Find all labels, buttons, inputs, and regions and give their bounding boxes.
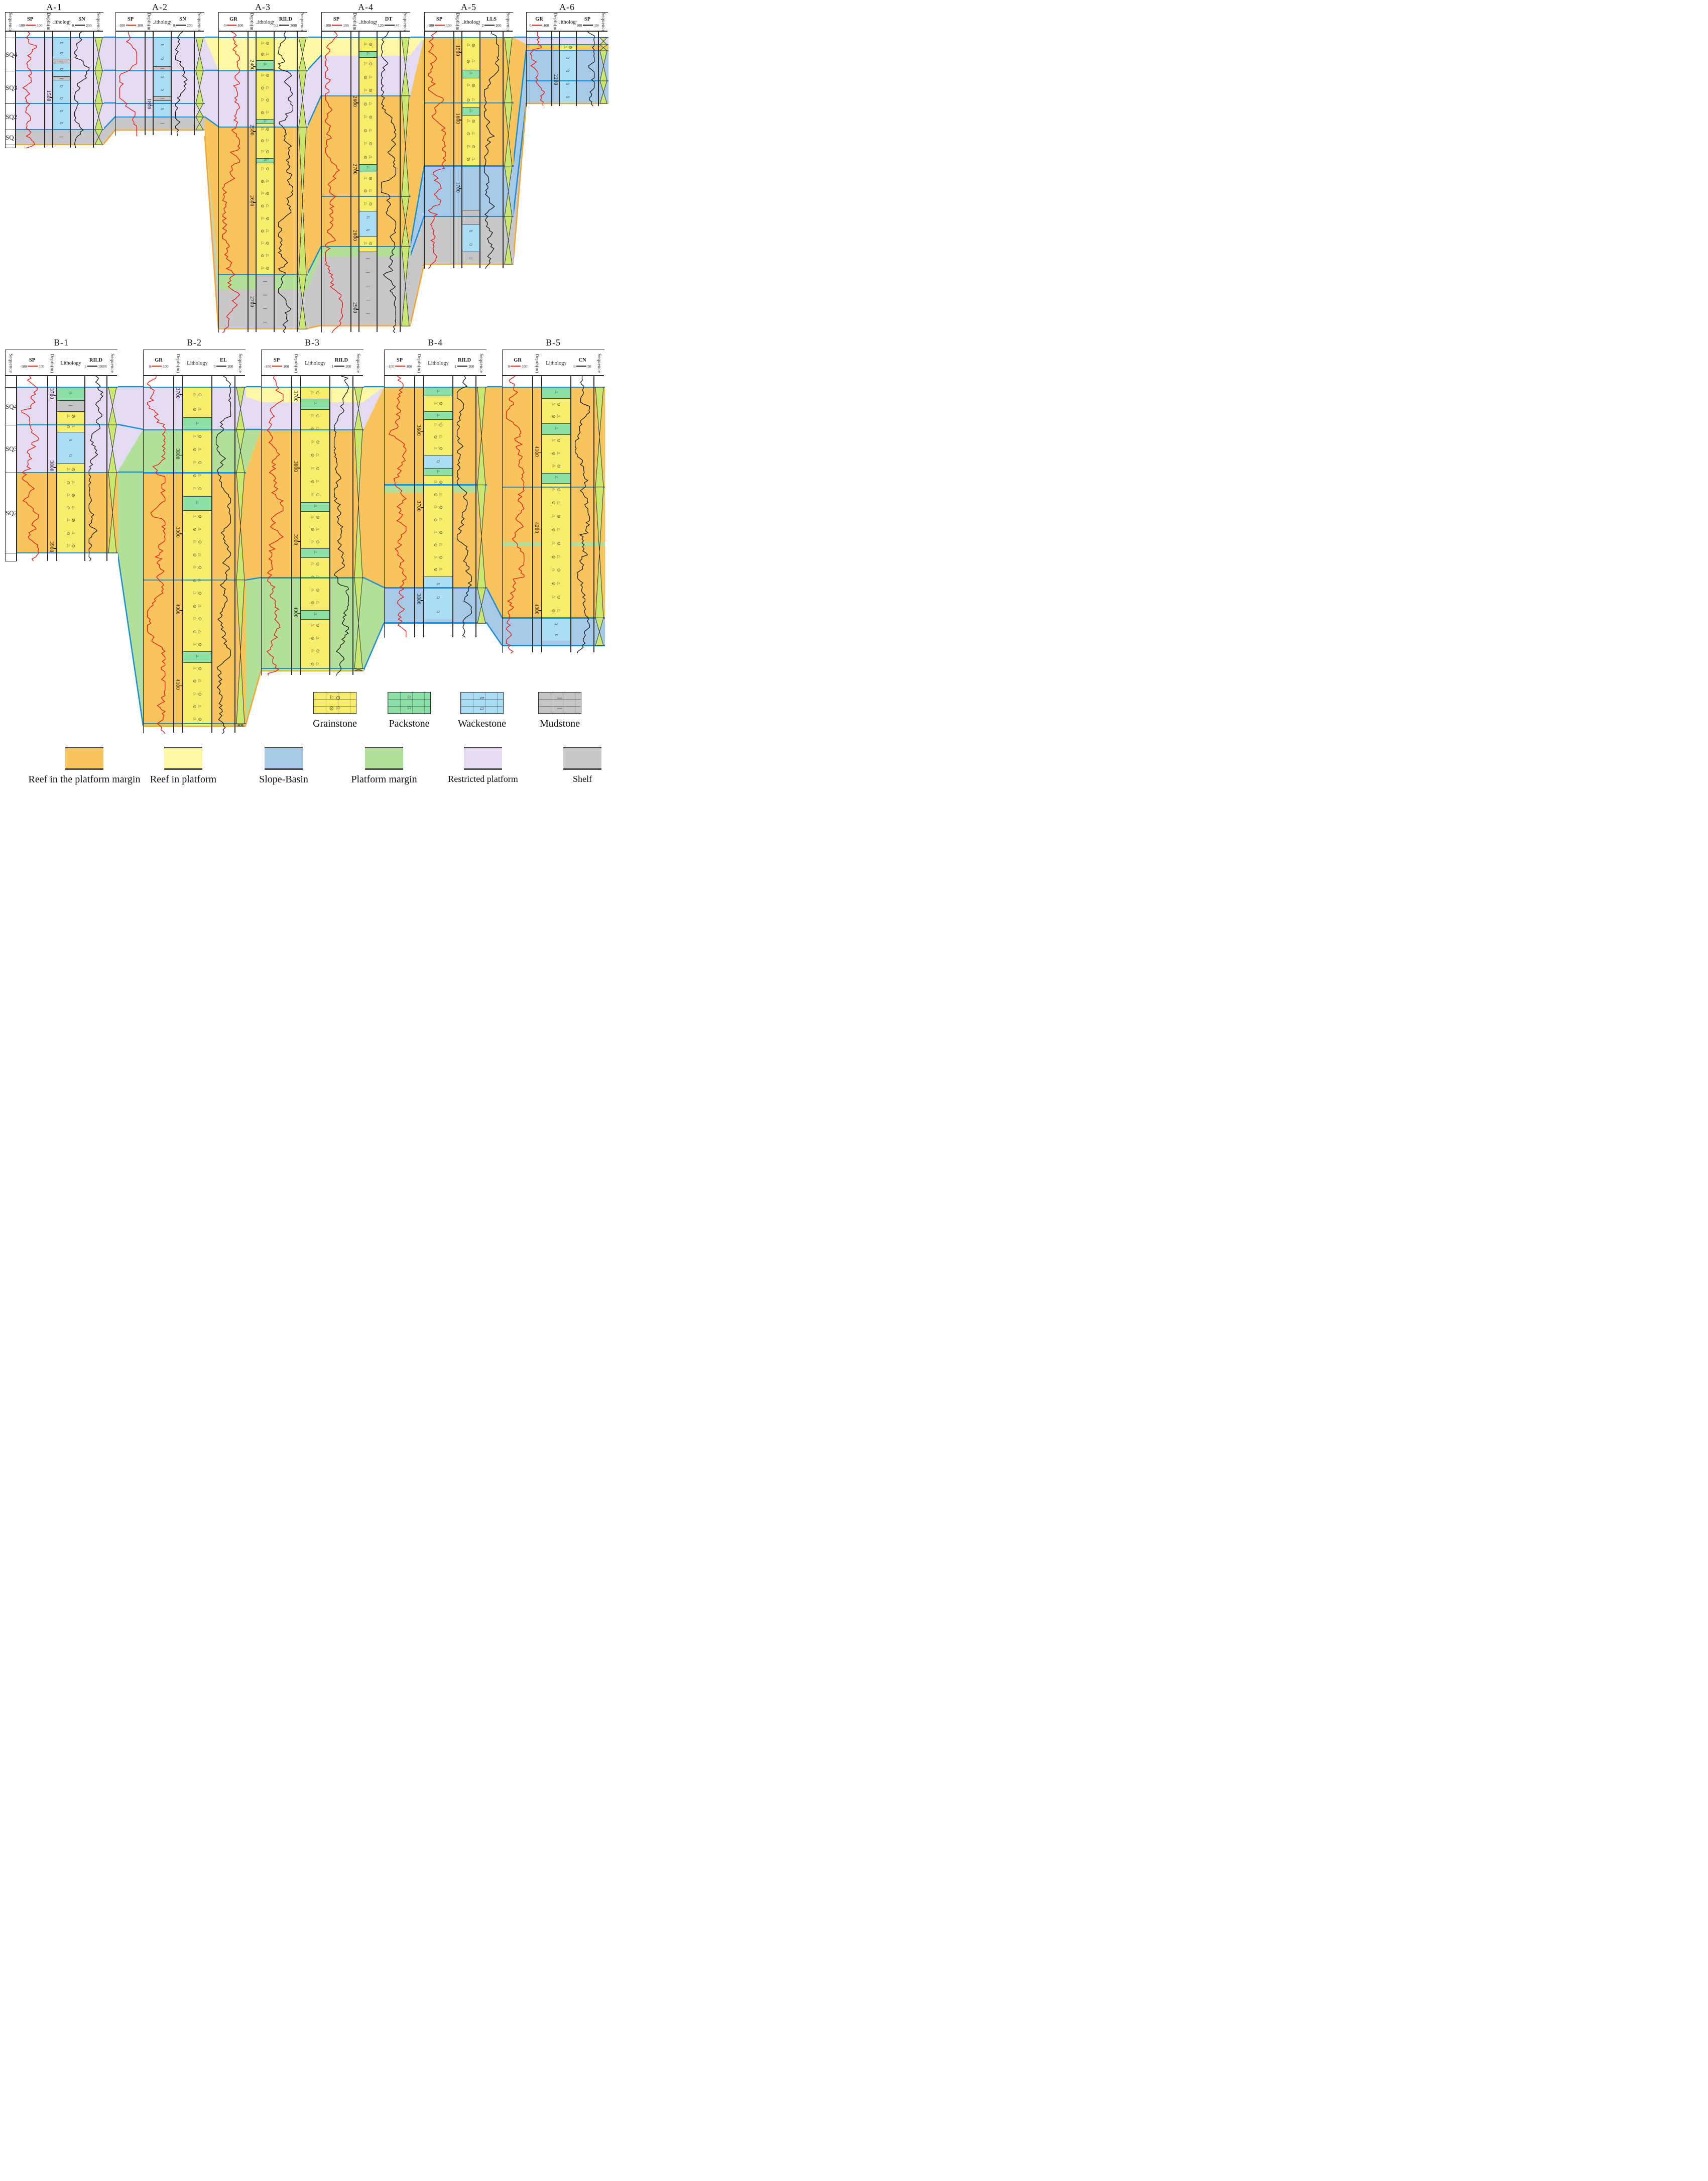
lithology-block-g: ⚐ ⊙⊙ ⚐ <box>183 387 212 417</box>
lithology-symbol: ⚐ ⊙ <box>434 402 442 406</box>
lithology-symbol: ⚐ <box>554 427 558 431</box>
depth-tick-label: 3800 <box>293 461 298 472</box>
sequence-triangle <box>477 536 485 588</box>
sequence-triangles <box>235 376 246 734</box>
lithology-symbol: ⚐ ⊙ <box>434 531 442 535</box>
column-divider <box>106 350 107 561</box>
depth-header: Depth(m) <box>174 350 183 376</box>
lithology-symbol: ⚐ ⊙ <box>66 544 75 549</box>
lithology-symbol: ⚐ ⊙ <box>311 391 319 396</box>
lithology-block-p: ⚐ <box>183 417 212 430</box>
sq-label: SQ3 <box>6 445 17 452</box>
sequence-triangle <box>595 632 603 646</box>
lithology-block-p: ⚐ <box>424 411 453 419</box>
depth-tick-label: 4200 <box>534 522 539 533</box>
lithology-block-w: ▱▱▱ <box>424 577 453 619</box>
sequence-triangle <box>595 618 603 632</box>
depth-tick-label: 3700 <box>49 388 54 399</box>
lithology-symbol: ⊙ ⚐ <box>329 706 341 711</box>
lithology-block-g: ⚐ ⊙ <box>424 396 453 411</box>
lithology-symbol: — <box>557 695 563 701</box>
sequence-triangle <box>236 430 245 451</box>
depth-tick-mark <box>298 397 300 398</box>
curve-max: 100 <box>39 365 44 369</box>
sequence-triangle <box>354 623 362 668</box>
lithology-symbol: ⚐ ⊙ <box>193 461 201 466</box>
legend-label: Platform margin <box>351 774 417 785</box>
lithology-block-g: ⚐ ⊙⊙ ⚐⚐ ⊙ <box>301 511 330 549</box>
sequence-triangle <box>477 436 485 485</box>
depth-tick-label: 4000 <box>175 604 180 615</box>
left-curve-header: GR0100 <box>144 350 174 376</box>
well-header: GR0100EL0200Depth(m)LithologySequence <box>144 350 245 376</box>
lithology-symbol: ⊙ ⚐ <box>193 474 201 479</box>
depth-header-label: Depth(m) <box>50 354 55 373</box>
sequence-triangle <box>236 725 245 726</box>
depth-tick-mark <box>421 431 423 432</box>
lithology-header-label: Lithology <box>305 361 325 366</box>
curve-min: 0 <box>214 365 216 369</box>
left-curve-trace <box>389 376 406 637</box>
curve-scale-line <box>87 366 97 367</box>
curve-min: -100 <box>20 365 27 369</box>
lithology-block-p: ⚐ <box>542 387 571 398</box>
right-curve-header: EL0200 <box>212 350 235 376</box>
column-divider <box>329 350 330 675</box>
lithology-symbol: ⊙ ⚐ <box>311 662 319 667</box>
lithology-symbol: ⊙ ⚐ <box>66 532 75 536</box>
lithology-symbol: ⊙ ⚐ <box>311 480 319 485</box>
lithology-block-g: ⚐ ⊙⊙ ⚐⚐ ⊙⊙ ⚐⚐ ⊙⊙ ⚐⚐ ⊙ <box>57 464 85 553</box>
lithology-symbol: ▱ <box>69 453 73 458</box>
right-curve <box>330 376 353 676</box>
depth-header: Depth(m) <box>292 350 301 376</box>
lithology-symbol: ⚐ ⊙ <box>434 447 442 451</box>
lithology-symbol: ⊙ ⚐ <box>552 609 560 614</box>
sequence-triangle <box>236 473 245 526</box>
sequence-triangle <box>595 437 603 487</box>
curve-name: SP <box>274 358 280 364</box>
lithology-symbol: ⊙ ⚐ <box>311 601 319 606</box>
lithology-symbol: ⊙ ⚐ <box>193 630 201 635</box>
curve-scale-line <box>216 366 226 367</box>
sequence-triangle <box>236 580 245 652</box>
column-divider <box>84 350 85 561</box>
lithology-symbol: ⚐ <box>436 390 440 394</box>
lithology-symbol: ⊙ ⚐ <box>552 555 560 560</box>
well-header: SP-100100RILD1200Depth(m)LithologySequen… <box>262 350 363 376</box>
curve-scale-line <box>457 366 467 367</box>
column-divider <box>475 350 476 637</box>
curve-scale: 1200 <box>331 365 352 369</box>
right-curve-trace <box>89 376 102 561</box>
right-curve-header: RILD110000 <box>85 350 107 376</box>
depth-tick-mark <box>298 541 300 542</box>
lithology-symbol: ⚐ ⊙ <box>552 596 560 600</box>
left-curve-header: SP-100100 <box>262 350 292 376</box>
lithology-symbol: ⚐ ⊙ <box>552 568 560 573</box>
right-curve-header: RILD1200 <box>453 350 476 376</box>
depth-tick-mark <box>539 452 541 453</box>
curve-max: 100 <box>522 365 527 369</box>
legend-swatch-packstone: ⚐⚐ <box>388 692 431 714</box>
depth-header-label: Depth(m) <box>176 354 181 373</box>
curve-name: SP <box>397 358 403 364</box>
column-divider <box>423 350 424 637</box>
sequence-triangle <box>108 387 116 406</box>
lithology-symbol: ⚐ <box>313 505 317 509</box>
sequence-triangle <box>236 451 245 473</box>
legend-swatch-mudstone: —— <box>538 692 581 714</box>
sequence-triangle <box>354 408 362 429</box>
curve-max: 200 <box>468 365 474 369</box>
lithology-block-p: ⚐ <box>183 496 212 510</box>
lithology-symbol: ⊙ ⚐ <box>434 518 442 523</box>
column-divider <box>211 350 212 733</box>
curve-max: 50 <box>587 365 591 369</box>
lithology-symbol: ⚐ ⊙ <box>552 439 560 443</box>
lithology-symbol: ⚐ ⊙ <box>193 435 201 439</box>
sequence-triangle <box>477 387 485 436</box>
header-divider <box>385 375 486 376</box>
curve-scale: -100100 <box>386 365 413 369</box>
depth-tick-mark <box>421 600 423 601</box>
sequence-triangles <box>107 376 118 562</box>
lithology-symbol: ⚐ ⊙ <box>552 542 560 546</box>
well-header: SP-100100RILD1200Depth(m)LithologySequen… <box>385 350 486 376</box>
column-divider <box>532 350 533 652</box>
lithology-block-g: ⚐ ⊙⊙ ⚐ <box>57 411 85 432</box>
sequence-triangle <box>108 448 116 473</box>
lithology-symbol: — <box>69 404 73 408</box>
lithology-symbol: ⊙ ⚐ <box>193 679 201 684</box>
lithology-symbol: ⊙ ⚐ <box>193 705 201 710</box>
sequence-header: Sequence <box>594 350 605 376</box>
sequence-row-header-label: Sequence <box>9 354 14 373</box>
sequence-header-label: Sequence <box>597 354 602 373</box>
sequence-triangle <box>595 387 603 437</box>
legend-swatch-wackestone: ▱▱ <box>460 692 504 714</box>
curve-scale: 0200 <box>213 365 234 369</box>
sequence-triangle <box>236 408 245 429</box>
sequence-header: Sequence <box>107 350 118 376</box>
lithology-symbol: ⚐ ⊙ <box>66 494 75 498</box>
curve-min: 0 <box>573 365 575 369</box>
sequence-triangles <box>353 376 364 676</box>
sequence-triangles <box>594 376 605 653</box>
curve-name: EL <box>220 358 227 364</box>
left-curve-header: GR0100 <box>503 350 533 376</box>
lithology-symbol: ▱ <box>437 460 440 464</box>
sequence-header: Sequence <box>476 350 487 376</box>
right-curve <box>212 376 235 734</box>
header-divider <box>6 375 117 376</box>
right-curve <box>85 376 107 562</box>
lithology-symbol: ⚐ ⊙ <box>193 718 201 722</box>
column-divider <box>182 350 183 733</box>
curve-scale: 0100 <box>145 365 172 369</box>
lithology-block-g: ⚐ ⊙ <box>301 387 330 399</box>
curve-name: GR <box>514 358 522 364</box>
curve-scale-line <box>152 366 162 367</box>
lithology-symbol: ⚐ ⊙ <box>311 589 319 593</box>
legend-label: Slope-Basin <box>259 774 308 785</box>
depth-tick-mark <box>54 395 56 396</box>
lithology-symbol: ▱ <box>555 622 558 626</box>
lithology-symbol: ⚐ <box>69 392 73 396</box>
lithology-symbol: ⚐ <box>407 695 412 701</box>
lithology-block-w: ▱▱ <box>57 432 85 464</box>
curve-min: 1 <box>455 365 457 369</box>
sequence-triangle <box>354 387 362 408</box>
curve-scale: 1200 <box>454 365 475 369</box>
curve-scale-line <box>334 366 344 367</box>
lithology-symbol: ⚐ ⊙ <box>311 649 319 654</box>
lithology-symbol: ▱ <box>555 633 558 638</box>
legend-swatch-reef_margin <box>65 747 103 770</box>
lithology-symbol: ⊙ ⚐ <box>434 543 442 548</box>
sequence-triangle <box>354 669 362 670</box>
sq-divider <box>6 425 17 425</box>
depth-tick-label: 3600 <box>416 425 421 436</box>
header-divider <box>503 375 604 376</box>
depth-tick-label: 4100 <box>534 446 539 457</box>
lithology-symbol: ⊙ ⚐ <box>193 605 201 609</box>
depth-tick-label: 3900 <box>49 541 54 552</box>
lithology-symbol: ⚐ ⊙ <box>193 592 201 596</box>
lithology-symbol: ⚐ ⊙ <box>193 643 201 647</box>
curve-scale: 0100 <box>504 365 531 369</box>
lithology-symbol: ⚐ <box>313 402 317 406</box>
legend-label: Reef in platform <box>150 774 216 785</box>
lithology-symbol: ⊙ ⚐ <box>311 528 319 532</box>
lithology-symbol: ⚐ ⊙ <box>311 414 319 419</box>
lithology-header: Lithology <box>542 350 571 376</box>
left-curve-header: SP-100100 <box>17 350 48 376</box>
lithology-symbol: ⚐ ⊙ <box>311 624 319 628</box>
left-curve-trace <box>148 376 165 734</box>
lithology-header: Lithology <box>424 350 453 376</box>
lithology-symbol: ⊙ ⚐ <box>552 452 560 456</box>
lithology-symbol: ⚐ <box>195 422 199 426</box>
depth-header: Depth(m) <box>48 350 57 376</box>
lithology-block-w: ▱ <box>424 455 453 468</box>
sequence-triangle <box>236 387 245 408</box>
lithology-symbol: ⚐ <box>195 655 199 659</box>
sequence-header-label: Sequence <box>238 354 243 373</box>
curve-name: RILD <box>89 358 102 364</box>
lithology-symbol: ⚐ ⊙ <box>552 465 560 469</box>
sequence-header: Sequence <box>353 350 364 376</box>
depth-tick-label: 3900 <box>293 534 298 545</box>
cross-section-figure: A-1▱▱—▱—▱▱▱▱—1500SQ4SQ3SQ2SQ1SequenceSP-… <box>0 0 619 787</box>
well-title: B-2 <box>164 337 224 348</box>
curve-name: RILD <box>458 358 471 364</box>
lithology-block-p: ⚐ <box>542 423 571 434</box>
depth-header-label: Depth(m) <box>535 354 540 373</box>
well-title: B-4 <box>405 337 465 348</box>
lithology-block-g: ⚐ ⊙⊙ ⚐⚐ ⊙⊙ ⚐⚐ ⊙⊙ ⚐⚐ ⊙⊙ ⚐⚐ ⊙⊙ ⚐⚐ ⊙ <box>183 510 212 651</box>
well-header: SequenceSP-100100RILD110000Depth(m)Litho… <box>6 350 117 376</box>
lithology-symbol: ▱ <box>437 582 440 587</box>
lithology-symbol: ⊙ ⚐ <box>193 448 201 452</box>
curve-scale: -100100 <box>18 365 46 369</box>
left-curve-trace <box>507 376 524 653</box>
well-title: B-5 <box>523 337 583 348</box>
curve-min: 0 <box>508 365 510 369</box>
well-panel: ⚐—⚐ ⊙⊙ ⚐▱▱⚐ ⊙⊙ ⚐⚐ ⊙⊙ ⚐⚐ ⊙⊙ ⚐⚐ ⊙370038003… <box>5 350 117 561</box>
curve-scale-line <box>272 366 282 367</box>
lithology-header-label: Lithology <box>546 361 566 366</box>
lithology-symbol: ⊙ ⚐ <box>66 506 75 511</box>
legend-label: Restricted platform <box>448 774 518 784</box>
sequence-triangle <box>354 430 362 504</box>
lithology-block-g: ⚐ ⊙⊙ ⚐⚐ ⊙⊙ ⚐⚐ ⊙ <box>183 430 212 496</box>
depth-tick-mark <box>180 394 182 395</box>
depth-tick-label: 3700 <box>416 501 421 512</box>
lithology-symbol: ⚐ <box>436 470 440 475</box>
curve-min: 1 <box>332 365 334 369</box>
lithology-block-m: — <box>57 400 85 411</box>
column-divider <box>352 350 353 675</box>
sequence-header-label: Sequence <box>110 354 115 373</box>
lithology-symbol: ⚐ ⊙ <box>311 516 319 520</box>
lithology-symbol: ⚐ ⊙ <box>552 488 560 493</box>
well-panel: ⚐ ⊙⚐⚐ ⊙⊙ ⚐⚐ ⊙⊙ ⚐⚐ ⊙⊙ ⚐⚐ ⊙⚐⚐ ⊙⊙ ⚐⚐ ⊙⚐⚐ ⊙⊙… <box>261 350 363 675</box>
depth-tick-mark <box>180 610 182 611</box>
lithology-symbol: ⚐ ⊙ <box>311 467 319 472</box>
curve-scale-line <box>511 366 521 367</box>
lithology-header: Lithology <box>183 350 212 376</box>
depth-tick-mark <box>298 468 300 469</box>
legend-label: Wackestone <box>458 718 506 730</box>
lithology-symbol: ⚐ ⊙ <box>552 403 560 407</box>
depth-header-label: Depth(m) <box>417 354 422 373</box>
lithology-block-g: ⚐ ⊙⊙ ⚐⚐ ⊙ <box>542 434 571 473</box>
column-divider <box>414 350 415 637</box>
legend-swatch-restricted <box>464 747 502 770</box>
lithology-symbol: ⚐ ⊙ <box>66 415 75 419</box>
left-curve-header: SP-100100 <box>385 350 415 376</box>
column-divider <box>173 350 174 733</box>
lithology-header-label: Lithology <box>60 361 81 366</box>
right-curve-trace <box>216 376 231 734</box>
curve-name: SP <box>29 358 35 364</box>
lithology-symbol: ⊙ ⚐ <box>434 493 442 498</box>
right-curve <box>453 376 476 638</box>
legend-label: Packstone <box>389 718 429 730</box>
lithology-symbol: ⚐ <box>195 501 199 506</box>
depth-tick-label: 3800 <box>175 448 180 460</box>
lithology-block-p: ⚐ <box>183 651 212 662</box>
lithology-symbol: ⚐ <box>313 551 317 555</box>
depth-tick-mark <box>180 533 182 534</box>
depth-tick-mark <box>421 507 423 508</box>
header-divider <box>144 375 245 376</box>
sequence-triangle <box>595 487 603 552</box>
lithology-symbol: ⊙ ⚐ <box>311 453 319 458</box>
curve-max: 200 <box>227 365 233 369</box>
left-curve <box>17 376 48 562</box>
sequence-triangle <box>354 578 362 623</box>
curve-max: 100 <box>283 365 289 369</box>
lithology-symbol: — <box>557 706 563 711</box>
lithology-header: Lithology <box>57 350 85 376</box>
lithology-symbol: ⚐ <box>436 414 440 418</box>
sequence-triangles <box>476 376 487 638</box>
lithology-block-p: ⚐ <box>301 399 330 409</box>
lithology-symbol: ▱ <box>437 596 440 600</box>
lithology-symbol: ⚐ <box>407 706 412 711</box>
lithology-block-g: ⚐ ⊙⊙ ⚐⚐ ⊙⊙ ⚐⚐ ⊙⊙ ⚐⚐ ⊙ <box>301 409 330 502</box>
column-divider <box>593 350 594 652</box>
curve-scale: 050 <box>572 365 593 369</box>
column-divider <box>570 350 571 652</box>
depth-tick-label: 3800 <box>416 594 421 605</box>
sequence-row-header: Sequence <box>6 350 17 376</box>
lithology-symbol: ⚐ ⊙ <box>552 515 560 519</box>
lithology-symbol: ⚐ ⊙ <box>193 487 201 492</box>
depth-tick-mark <box>539 610 541 611</box>
left-curve <box>385 376 415 638</box>
depth-tick-label: 4100 <box>175 679 180 690</box>
sequence-header-label: Sequence <box>356 354 361 373</box>
depth-tick-mark <box>54 467 56 468</box>
depth-tick-mark <box>539 529 541 530</box>
column-divider <box>291 350 292 675</box>
sq-divider <box>6 473 17 473</box>
curve-min: -100 <box>265 365 272 369</box>
lithology-block-g: ⚐ ⊙⊙ ⚐⚐ ⊙⊙ ⚐ <box>301 557 330 610</box>
column-divider <box>234 350 235 733</box>
depth-header-label: Depth(m) <box>294 354 299 373</box>
lithology-symbol: ⚐ ⊙ <box>434 506 442 510</box>
depth-tick-mark <box>298 613 300 614</box>
lithology-symbol: ⚐ ⊙ <box>311 440 319 445</box>
left-curve <box>262 376 292 676</box>
lithology-symbol: ⚐ ⊙ <box>193 617 201 622</box>
column-divider <box>541 350 542 652</box>
curve-min: 0 <box>149 365 151 369</box>
lithology-symbol: ⊙ ⚐ <box>311 637 319 641</box>
lithology-block-w: ▱▱ <box>542 618 571 641</box>
legend-swatch-reef_platform <box>164 747 202 770</box>
curve-name: RILD <box>335 358 348 364</box>
lithology-symbol: ⚐ ⊙ <box>329 695 341 701</box>
lithology-symbol: ▱ <box>480 695 484 701</box>
well-panel: ⚐⚐ ⊙⚐⚐ ⊙⊙ ⚐⚐ ⊙▱⚐⚐ ⊙⊙ ⚐⚐ ⊙⊙ ⚐⚐ ⊙⊙ ⚐⚐ ⊙⊙ ⚐… <box>384 350 486 638</box>
sequence-triangle <box>108 513 116 553</box>
lithology-block-g: ⚐ ⊙⊙ ⚐⚐ ⊙ <box>424 419 453 454</box>
curve-name: CN <box>578 358 586 364</box>
lithology-symbol: ⚐ ⊙ <box>434 423 442 428</box>
legend-swatch-platform_margin <box>365 747 403 770</box>
lithology-block-p: ⚐ <box>424 387 453 396</box>
legend-label: Shelf <box>573 774 592 784</box>
depth-tick-mark <box>54 548 56 549</box>
curve-min: -100 <box>388 365 395 369</box>
depth-tick-label: 3800 <box>49 461 54 472</box>
curve-scale-line <box>28 366 38 367</box>
lithology-symbol: ⚐ ⊙ <box>311 562 319 567</box>
curve-scale: -100100 <box>263 365 290 369</box>
curve-max: 100 <box>163 365 168 369</box>
lithology-symbol: ⊙ ⚐ <box>193 528 201 532</box>
lithology-symbol: ⚐ ⊙ <box>66 519 75 523</box>
lithology-symbol: ⚐ ⊙ <box>311 493 319 498</box>
lithology-symbol: ⚐ <box>313 613 317 617</box>
lithology-symbol: ⚐ ⊙ <box>311 540 319 545</box>
